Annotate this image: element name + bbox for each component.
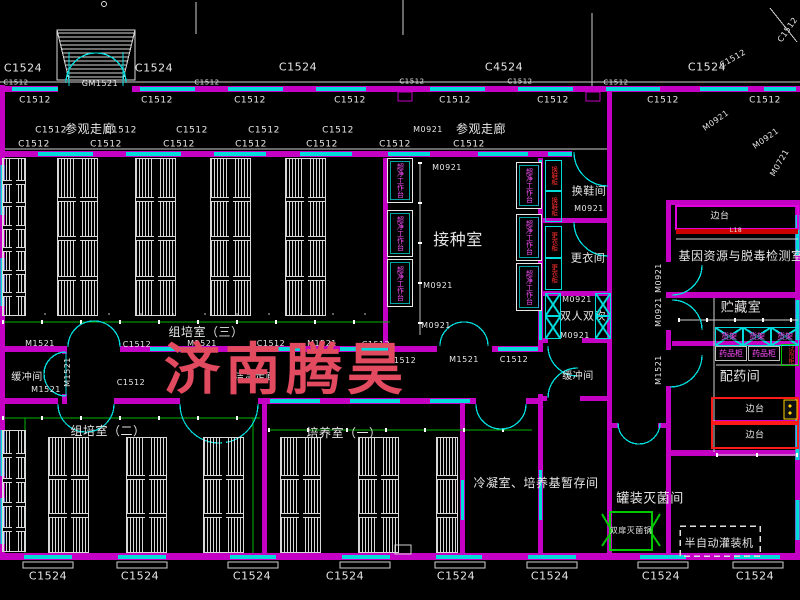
rack-aisle-gap	[67, 438, 71, 552]
rack-aisle-gap	[145, 438, 149, 552]
cad-label: C1524	[326, 571, 364, 582]
cad-label: C1512	[248, 127, 280, 136]
cad-label: M0921	[423, 282, 453, 290]
culture-rack	[2, 158, 26, 316]
storage-rack: 货架	[715, 327, 743, 346]
clean-bench-label: 超净工作台	[526, 270, 533, 305]
clean-bench-label: 超净工作台	[526, 168, 533, 203]
cad-label: C1512	[500, 356, 528, 364]
cad-label: 边台	[745, 406, 764, 415]
locker-cabinet: 更衣柜	[545, 258, 562, 290]
clean-bench: 超净工作台	[516, 214, 542, 261]
room-label-condensation-medium-storage: 冷凝室、培养基暂存间	[473, 477, 598, 489]
medicine-cabinet: 药品柜	[748, 346, 780, 361]
cad-label: C1512	[322, 127, 354, 136]
rack-aisle-gap	[299, 438, 303, 552]
cad-label: C1524	[531, 571, 569, 582]
watermark: 济南腾昊	[164, 342, 408, 401]
cad-label: C4524	[485, 62, 523, 73]
equip-label-semi-auto-filler: 半自动灌装机	[685, 538, 754, 549]
cad-label: C1512	[507, 79, 532, 86]
clean-bench: 超净工作台	[387, 210, 413, 257]
culture-rack	[358, 437, 399, 553]
cad-label: M0921	[655, 263, 663, 293]
shoe-cabinet: 换鞋柜	[545, 191, 562, 222]
cad-label: M1521	[655, 355, 663, 385]
cad-label: C1524	[437, 571, 475, 582]
reagent-cabinet-label: 试剂柜	[787, 346, 793, 364]
cad-label: C1524	[121, 571, 159, 582]
rack-aisle-gap	[304, 159, 308, 315]
rack-shelf-divider	[437, 514, 457, 517]
cad-label: C1512	[453, 141, 485, 150]
rack-aisle-gap	[12, 431, 16, 551]
clean-bench: 超净工作台	[387, 259, 413, 307]
rack-shelf-divider	[437, 476, 457, 479]
cad-label: C1512	[18, 141, 50, 150]
cad-label: C1512	[176, 127, 208, 136]
cad-label: C1512	[194, 80, 219, 87]
locker-cabinet: 更衣柜	[545, 226, 562, 258]
cad-label: C1512	[647, 97, 679, 106]
shoe-cabinet-label: 换鞋柜	[550, 197, 557, 217]
cad-label: M0721	[769, 148, 791, 178]
equip-label-double-door-sterilizer: 双扉灭菌锅	[610, 527, 653, 535]
cad-label: M0921	[702, 109, 731, 133]
clean-bench-label: 超净工作台	[526, 220, 533, 255]
cad-label: C1512	[439, 97, 471, 106]
culture-rack	[126, 437, 167, 553]
clean-bench: 超净工作台	[516, 263, 542, 311]
cad-label: C1524	[29, 571, 67, 582]
cad-label: C1512	[90, 141, 122, 150]
room-label-tissue-culture-2: 组培室（二）	[70, 425, 145, 437]
cad-label: C1512	[123, 341, 151, 349]
rack-aisle-gap	[154, 159, 158, 315]
cad-label: C1512	[399, 79, 424, 86]
room-label-drug-prep: 配药间	[720, 371, 761, 384]
culture-rack	[203, 437, 244, 553]
room-label-shoe-change: 换鞋间	[572, 186, 607, 197]
cad-label: M0921	[432, 164, 462, 172]
cad-label: M0921	[560, 332, 590, 340]
culture-rack	[48, 437, 89, 553]
cad-label: 边台	[710, 213, 729, 222]
generated-layer: C1524C1524C1524C4524C1524C1512C1512C1512…	[0, 0, 800, 600]
rack-aisle-gap	[222, 438, 226, 552]
cad-label: L18	[730, 228, 742, 234]
cad-label: C1512	[235, 141, 267, 150]
room-label-inoculation: 接种室	[433, 232, 483, 248]
rack-aisle-gap	[377, 438, 381, 552]
culture-rack	[57, 158, 98, 316]
storage-rack-label: 货架	[748, 333, 766, 341]
room-label-visit-corridor-right: 参观走廊	[456, 123, 506, 135]
cad-label: C1512	[105, 127, 137, 136]
culture-rack	[135, 158, 176, 316]
cad-floorplan-canvas: C1524C1524C1524C4524C1524C1512C1512C1512…	[0, 0, 800, 600]
clean-bench-label: 超净工作台	[397, 266, 404, 301]
clean-bench: 超净工作台	[516, 162, 542, 209]
rack-aisle-gap	[76, 159, 80, 315]
culture-rack	[280, 437, 321, 553]
cad-label: M1521	[31, 386, 61, 394]
air-shower-cell	[545, 293, 561, 316]
culture-rack	[2, 430, 26, 552]
air-shower-cell	[545, 316, 561, 339]
air-shower-cell	[595, 293, 611, 316]
cad-label: C1512	[3, 80, 28, 87]
cad-label: C1524	[642, 571, 680, 582]
rack-aisle-gap	[12, 159, 16, 315]
clean-bench-label: 超净工作台	[397, 163, 404, 198]
cad-label: C1512	[306, 141, 338, 150]
cad-label: M0921	[655, 297, 663, 327]
cad-label: C1512	[777, 16, 800, 44]
cad-label: C1512	[379, 141, 411, 150]
cad-label: C1524	[279, 62, 317, 73]
cad-label: GM1521	[82, 80, 118, 88]
cad-label: C1512	[117, 379, 145, 387]
cad-label: M0921	[421, 322, 451, 330]
culture-rack	[436, 437, 458, 553]
reagent-cabinet: 试剂柜	[781, 344, 799, 366]
cad-label: C1512	[719, 48, 748, 69]
room-label-buffer-right: 缓冲间	[562, 372, 594, 382]
storage-rack-label: 货架	[720, 333, 738, 341]
air-shower-cell	[595, 316, 611, 339]
clean-bench-label: 超净工作台	[397, 216, 404, 251]
shoe-cabinet-label: 换鞋柜	[550, 166, 557, 186]
cad-label: M0921	[574, 205, 604, 213]
cad-label: C1524	[233, 571, 271, 582]
cad-label: M1521	[449, 356, 479, 364]
room-label-gene-resource-detection: 基因资源与脱毒检测室	[678, 250, 800, 262]
cad-label: C1512	[603, 80, 628, 87]
cad-label: C1512	[234, 97, 266, 106]
medicine-cabinet-label: 药品柜	[752, 350, 776, 358]
cad-label: M1521	[25, 340, 55, 348]
cad-label: C1512	[141, 97, 173, 106]
room-label-dressing: 更衣间	[571, 253, 606, 264]
medicine-cabinet: 药品柜	[715, 346, 747, 361]
cad-label: M0921	[413, 126, 443, 134]
cad-label: C1512	[35, 127, 67, 136]
cad-label: C1524	[736, 571, 774, 582]
cad-label: C1524	[135, 63, 173, 74]
room-label-buffer-left: 缓冲间	[11, 373, 43, 383]
storage-rack: 货架	[771, 327, 799, 346]
cad-label: M1521	[64, 357, 72, 387]
culture-rack	[285, 158, 326, 316]
cad-label: M0921	[562, 296, 592, 304]
cad-label: C1512	[334, 97, 366, 106]
shoe-cabinet: 换鞋柜	[545, 160, 562, 191]
room-label-storage: 贮藏室	[721, 302, 762, 315]
clean-bench: 超净工作台	[387, 158, 413, 203]
cad-label: 边台	[745, 432, 764, 441]
locker-cabinet-label: 更衣柜	[550, 232, 557, 252]
cad-label: C1512	[19, 97, 51, 106]
medicine-cabinet-label: 药品柜	[719, 350, 743, 358]
storage-rack-label: 货架	[776, 333, 794, 341]
cad-label: C1524	[4, 63, 42, 74]
cad-label: C1512	[163, 141, 195, 150]
room-label-tissue-culture-3: 组培室（三）	[168, 326, 243, 338]
cad-label: C1512	[749, 97, 781, 106]
cad-label: C1512	[537, 97, 569, 106]
culture-rack	[210, 158, 251, 316]
storage-rack: 货架	[743, 327, 771, 346]
room-label-canning-sterilization: 罐装灭菌间	[616, 493, 684, 506]
cad-label: M0921	[752, 127, 781, 151]
locker-cabinet-label: 更衣柜	[550, 264, 557, 284]
rack-aisle-gap	[229, 159, 233, 315]
